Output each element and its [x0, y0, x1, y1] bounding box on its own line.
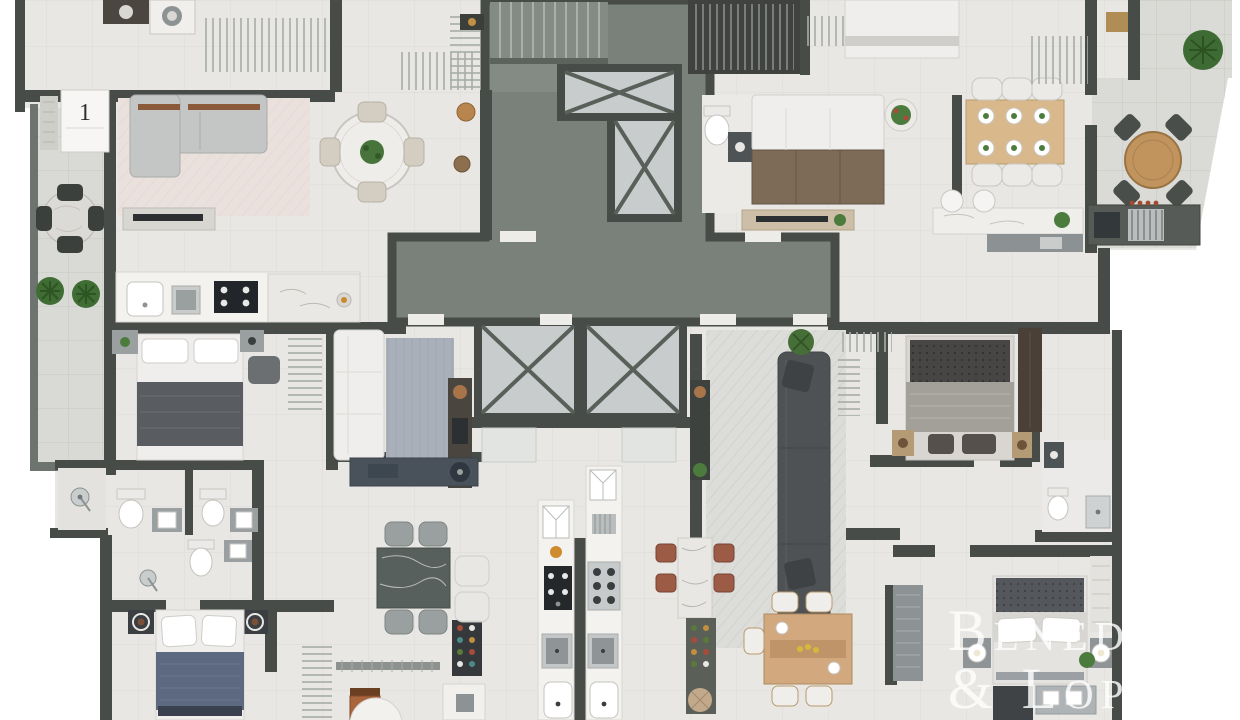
bar-stool-icon	[656, 544, 676, 562]
bar-stool-icon	[656, 574, 676, 592]
nightstand-icon	[128, 610, 154, 634]
ottoman	[248, 356, 280, 384]
unit-entry-door: 1	[40, 90, 109, 152]
chair-icon	[419, 610, 447, 634]
grill-icon	[1088, 201, 1200, 245]
side-table	[454, 156, 470, 172]
bed-icon	[906, 336, 1014, 460]
chair-icon	[806, 592, 832, 612]
side-table	[457, 103, 475, 121]
plant-icon	[1183, 30, 1223, 70]
sink-icon	[588, 634, 618, 668]
kitchen-counter	[538, 500, 574, 720]
nightstand-icon	[242, 610, 268, 634]
laundry-tub-icon	[590, 682, 618, 718]
chair-icon	[1032, 164, 1062, 186]
tv-console-icon	[742, 210, 854, 230]
chair-icon	[972, 164, 1002, 186]
bed-icon	[845, 0, 959, 58]
wine-rack-icon	[686, 618, 716, 714]
laundry-tub-icon	[127, 282, 163, 316]
kitchen-counter	[350, 458, 478, 486]
cabinet	[443, 684, 485, 720]
watermark-line1: Beneduzi	[948, 598, 1220, 663]
chair-icon	[772, 686, 798, 706]
bar-stool-icon	[714, 544, 734, 562]
chair-icon	[419, 522, 447, 546]
sink-icon	[542, 634, 572, 668]
chair-icon	[358, 102, 386, 122]
bar-stool-icon	[714, 574, 734, 592]
chair-icon	[972, 78, 1002, 100]
chair-icon	[744, 628, 764, 654]
chair-icon	[1002, 78, 1032, 100]
toilet-icon	[1048, 496, 1068, 520]
plant-icon	[360, 140, 384, 164]
tv-console-icon	[123, 208, 215, 230]
sink-icon	[987, 234, 1083, 252]
washer-icon	[150, 0, 195, 34]
refrigerator-icon	[543, 506, 569, 538]
cooktop-icon	[544, 566, 572, 610]
door-number-label: 1	[79, 100, 91, 126]
wardrobe-rack-icon	[838, 332, 892, 352]
wardrobe-rack-icon	[205, 18, 330, 72]
wine-rack-icon	[452, 620, 482, 676]
toilet-icon	[200, 489, 226, 526]
chair-icon	[320, 138, 340, 166]
elevator-x-icon	[478, 322, 578, 417]
toilet-icon	[117, 489, 145, 528]
bathroom	[702, 95, 754, 213]
chair-icon	[57, 184, 83, 201]
cooktop-icon	[214, 281, 258, 313]
wardrobe-rack-icon	[302, 642, 332, 720]
kitchen-counter	[586, 466, 622, 720]
cabinet	[482, 428, 536, 462]
bed-icon	[156, 610, 244, 720]
bathroom	[1042, 440, 1112, 532]
chair-icon	[455, 592, 489, 622]
toilet-icon	[188, 540, 214, 576]
wardrobe-rack-icon	[1030, 36, 1088, 84]
watermark: Beneduzi & Lopes	[948, 598, 1220, 720]
floor-plan-render: 1	[0, 0, 1240, 720]
toilet-icon	[704, 106, 730, 145]
dining-table-icon	[966, 78, 1064, 186]
chair-icon	[36, 206, 52, 231]
chair-icon	[1002, 164, 1032, 186]
plant-icon	[36, 277, 64, 305]
bar-stool-icon	[941, 190, 963, 212]
bar-stool-icon	[973, 190, 995, 212]
plant-icon	[788, 329, 814, 355]
elevator-x-icon	[583, 322, 683, 417]
plant-icon	[885, 99, 917, 131]
chair-icon	[772, 592, 798, 612]
wardrobe-rack-icon	[838, 354, 860, 416]
bed-icon	[137, 334, 243, 460]
washer-icon	[1106, 12, 1128, 32]
refrigerator-icon	[590, 470, 616, 500]
chair-icon	[806, 686, 832, 706]
plant-icon	[1054, 212, 1070, 228]
chair-icon	[404, 138, 424, 166]
stove-icon	[588, 562, 620, 610]
dining-table-icon	[377, 522, 450, 634]
chair-icon	[88, 206, 104, 231]
sofa-icon	[752, 95, 884, 204]
chair-icon	[57, 236, 83, 253]
kitchen-counter	[116, 272, 360, 322]
chair-icon	[455, 556, 489, 586]
laundry-tub-icon	[544, 682, 572, 718]
floor-plan-canvas: 1	[0, 0, 1240, 720]
plant-icon	[72, 280, 100, 308]
rack	[592, 514, 616, 534]
sofa-icon	[334, 330, 384, 460]
watermark-line2: & Lopes	[948, 656, 1192, 720]
elevator-x-icon	[611, 117, 678, 218]
elevator-x-icon	[561, 68, 678, 117]
chair-icon	[385, 522, 413, 546]
cabinet	[622, 428, 676, 462]
tv-console-icon	[690, 380, 710, 480]
chair-icon	[385, 610, 413, 634]
wardrobe-rack-icon	[288, 334, 322, 412]
chair-icon	[358, 182, 386, 202]
